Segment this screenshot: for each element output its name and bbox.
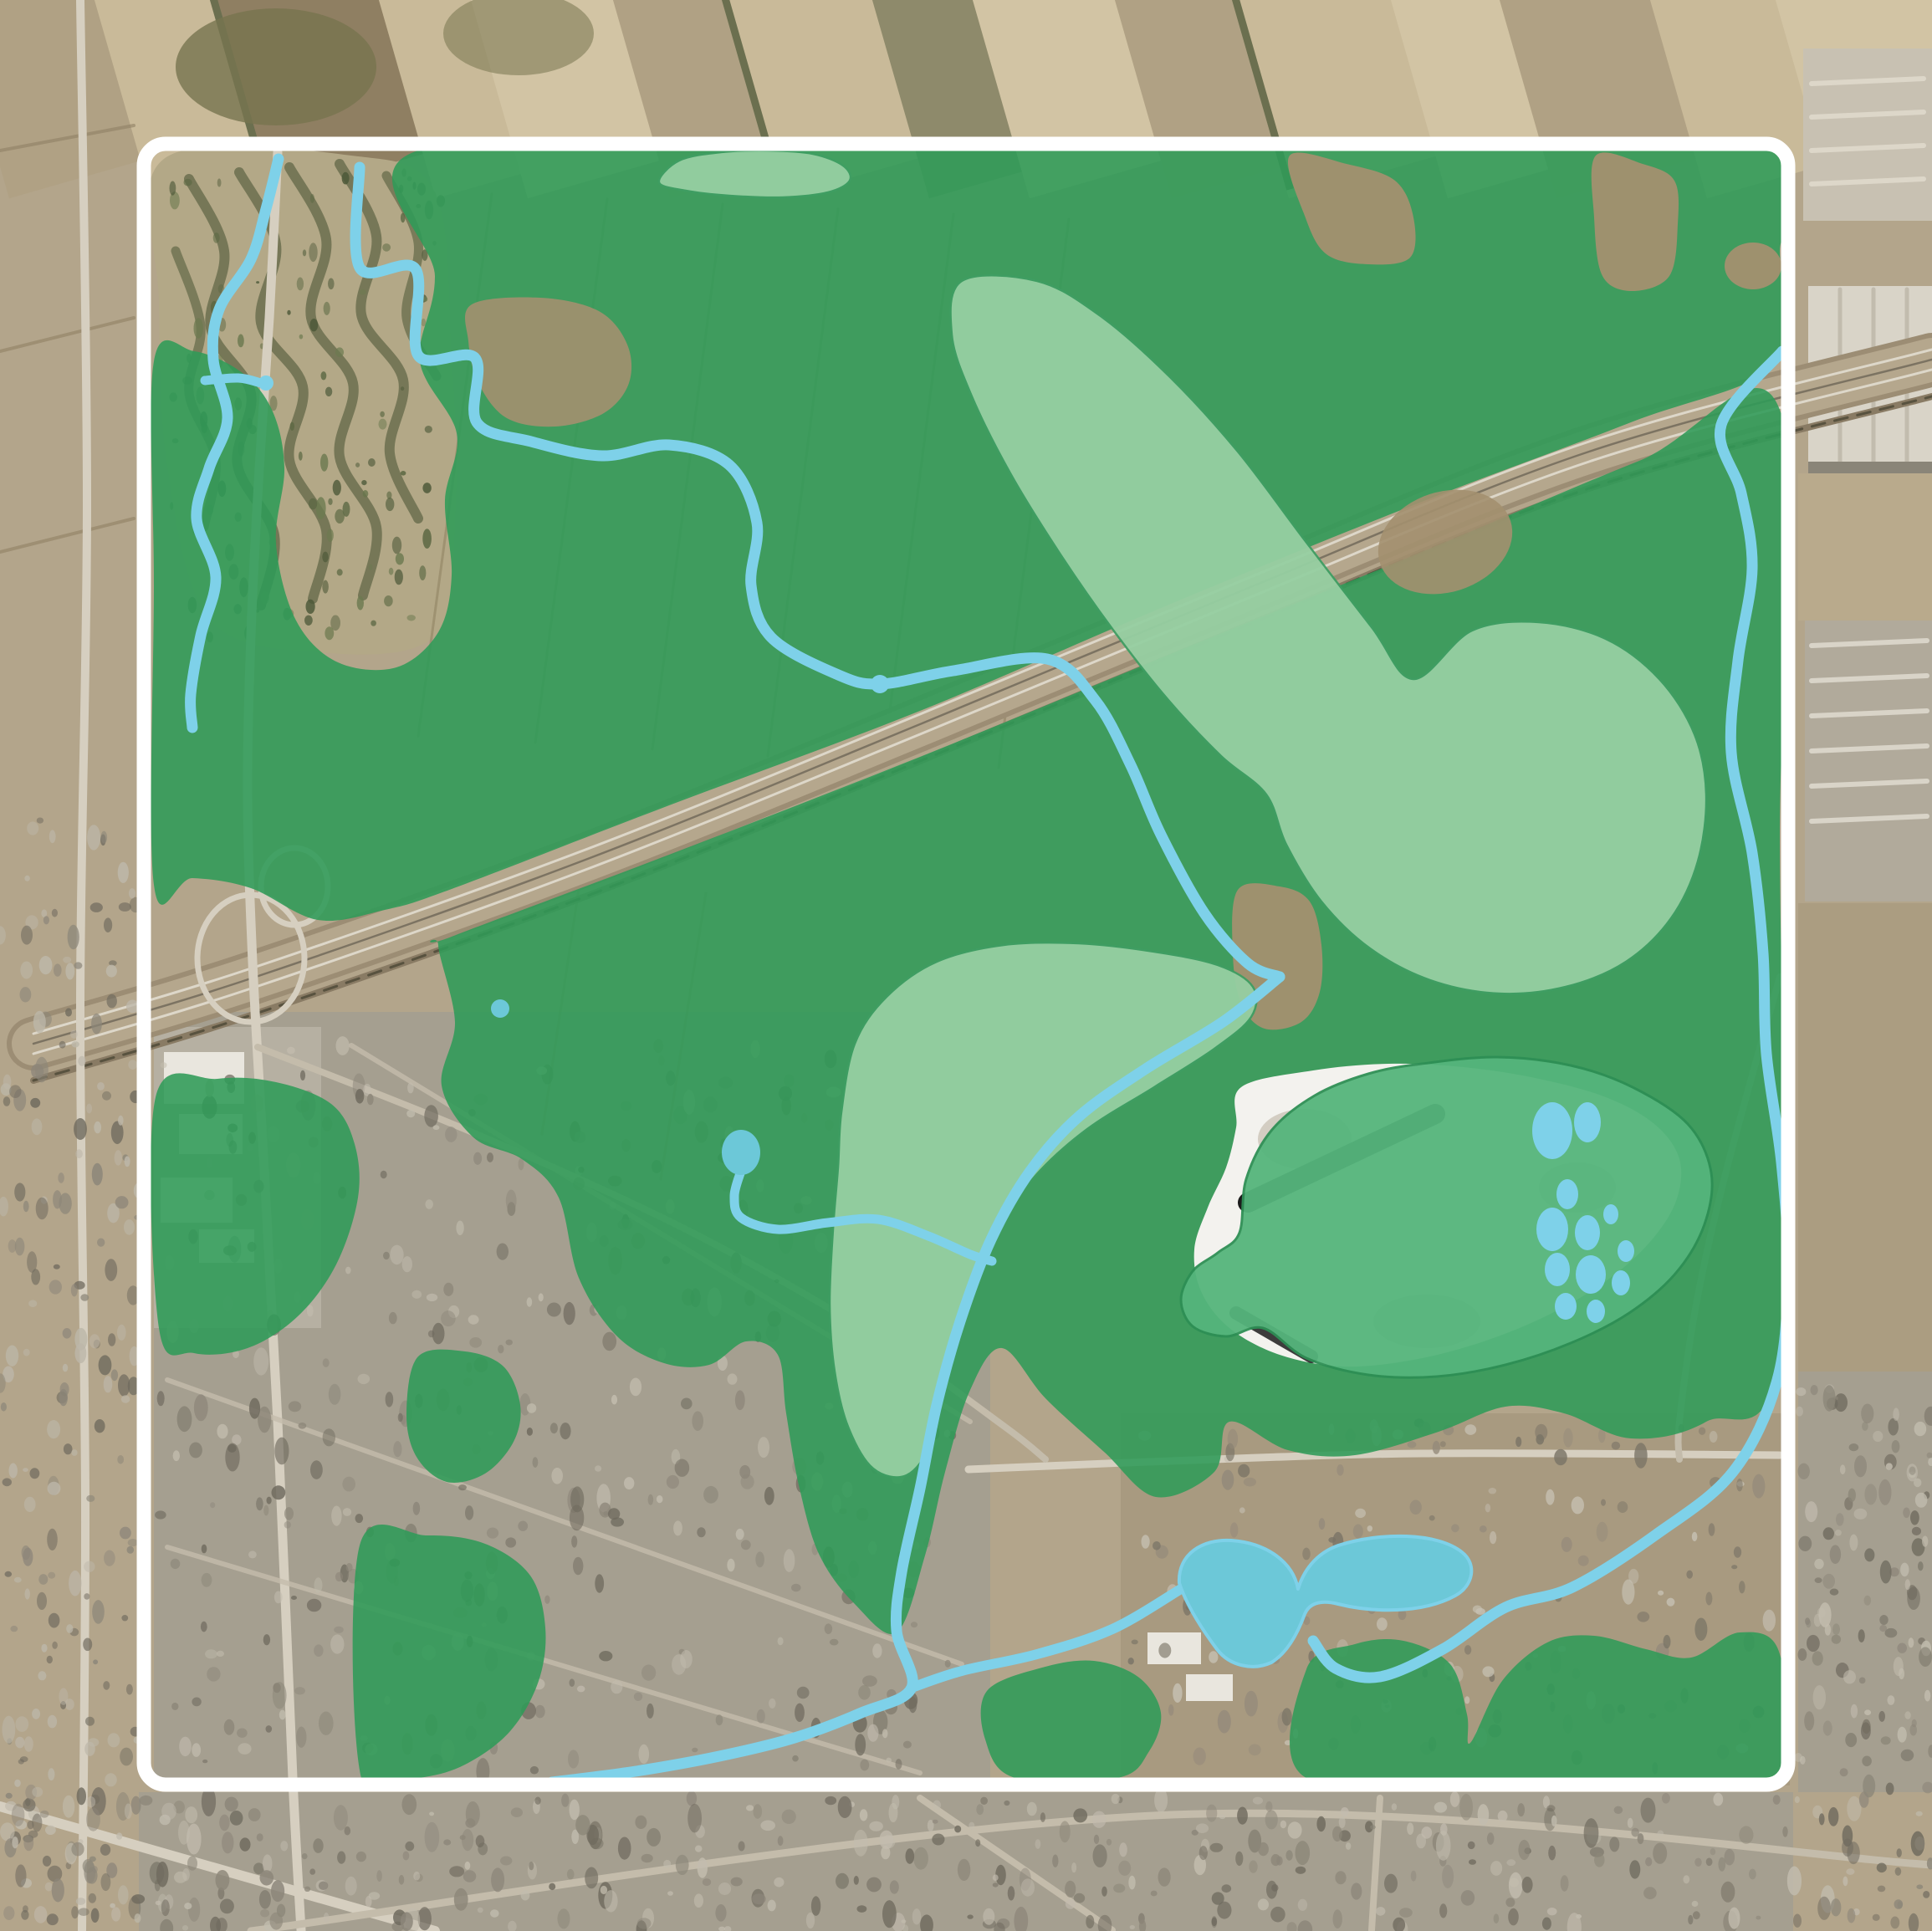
map-canvas[interactable]	[0, 0, 1932, 1931]
map-viewport[interactable]	[0, 0, 1932, 1931]
